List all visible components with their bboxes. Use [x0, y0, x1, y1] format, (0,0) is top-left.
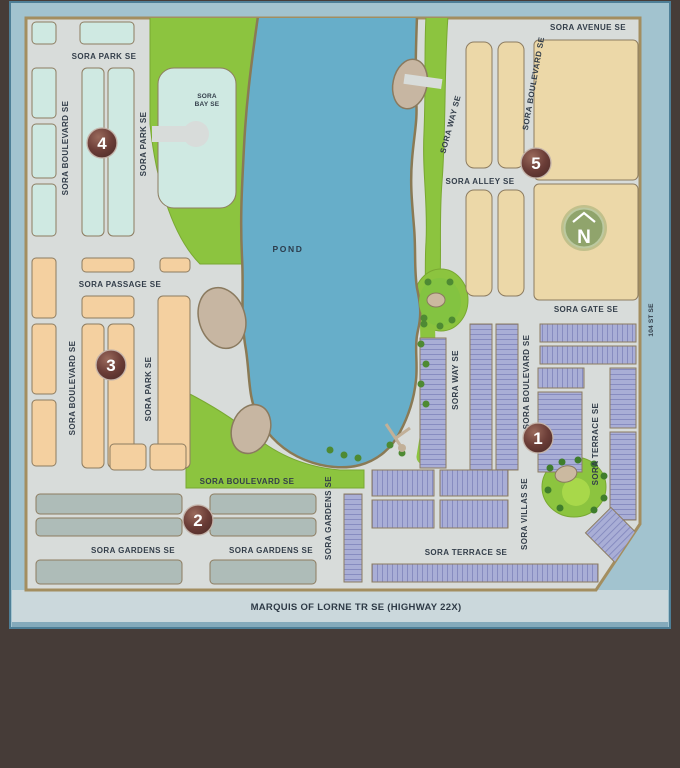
street-label-sora-avenue-se: SORA AVENUE SE — [550, 23, 626, 32]
svg-text:2: 2 — [193, 511, 202, 530]
street-label-sora-terrace-se-h: SORA TERRACE SE — [425, 548, 508, 557]
street-label-sora-way-se: SORA WAY SE — [451, 350, 460, 410]
phase-marker-5: 5 — [521, 148, 551, 178]
street-label-sora-bay-se-line2: BAY SE — [195, 101, 220, 108]
street-label-sora-gardens-se-a: SORA GARDENS SE — [91, 546, 175, 555]
street-label-104-st-se: 104 ST SE — [648, 303, 655, 337]
highway-label: MARQUIS OF LORNE TR SE (HIGHWAY 22X) — [251, 602, 462, 613]
svg-text:3: 3 — [106, 356, 115, 375]
phase-marker-4: 4 — [87, 128, 117, 158]
street-label-sora-alley-se: SORA ALLEY SE — [446, 177, 515, 186]
street-label-sora-gardens-se-v: SORA GARDENS SE — [324, 476, 333, 560]
street-label-sora-boulevard-se-nw: SORA BOULEVARD SE — [61, 100, 70, 195]
street-label-sora-park-se-top: SORA PARK SE — [72, 52, 137, 61]
street-label-sora-park-se-sw: SORA PARK SE — [144, 356, 153, 421]
street-label-sora-boulevard-se-south: SORA BOULEVARD SE — [200, 477, 295, 486]
street-label-sora-park-se-nw: SORA PARK SE — [139, 111, 148, 176]
sora-site-map: N SORA PARK SE SORA BOULEVARD SE SORA PA… — [0, 0, 680, 640]
svg-text:5: 5 — [531, 154, 540, 173]
street-label-sora-villas-se: SORA VILLAS SE — [520, 478, 529, 550]
street-label-sora-gate-se: SORA GATE SE — [554, 305, 619, 314]
street-label-sora-passage-se: SORA PASSAGE SE — [79, 280, 162, 289]
phase-marker-2: 2 — [183, 505, 213, 535]
phase-marker-3: 3 — [96, 350, 126, 380]
compass-north-letter: N — [577, 227, 591, 248]
street-label-sora-gardens-se-b: SORA GARDENS SE — [229, 546, 313, 555]
street-label-sora-bay-se-line1: SORA — [197, 93, 217, 100]
street-label-sora-boulevard-se-sw: SORA BOULEVARD SE — [68, 340, 77, 435]
phase-marker-1: 1 — [523, 423, 553, 453]
north-compass: N — [561, 205, 607, 251]
street-label-sora-boulevard-se-e: SORA BOULEVARD SE — [522, 334, 531, 429]
svg-text:4: 4 — [97, 134, 107, 153]
pond-label: POND — [273, 244, 304, 254]
svg-text:1: 1 — [533, 429, 542, 448]
street-label-sora-terrace-se-v: SORA TERRACE SE — [591, 402, 600, 485]
highway-band-edge — [12, 622, 668, 627]
